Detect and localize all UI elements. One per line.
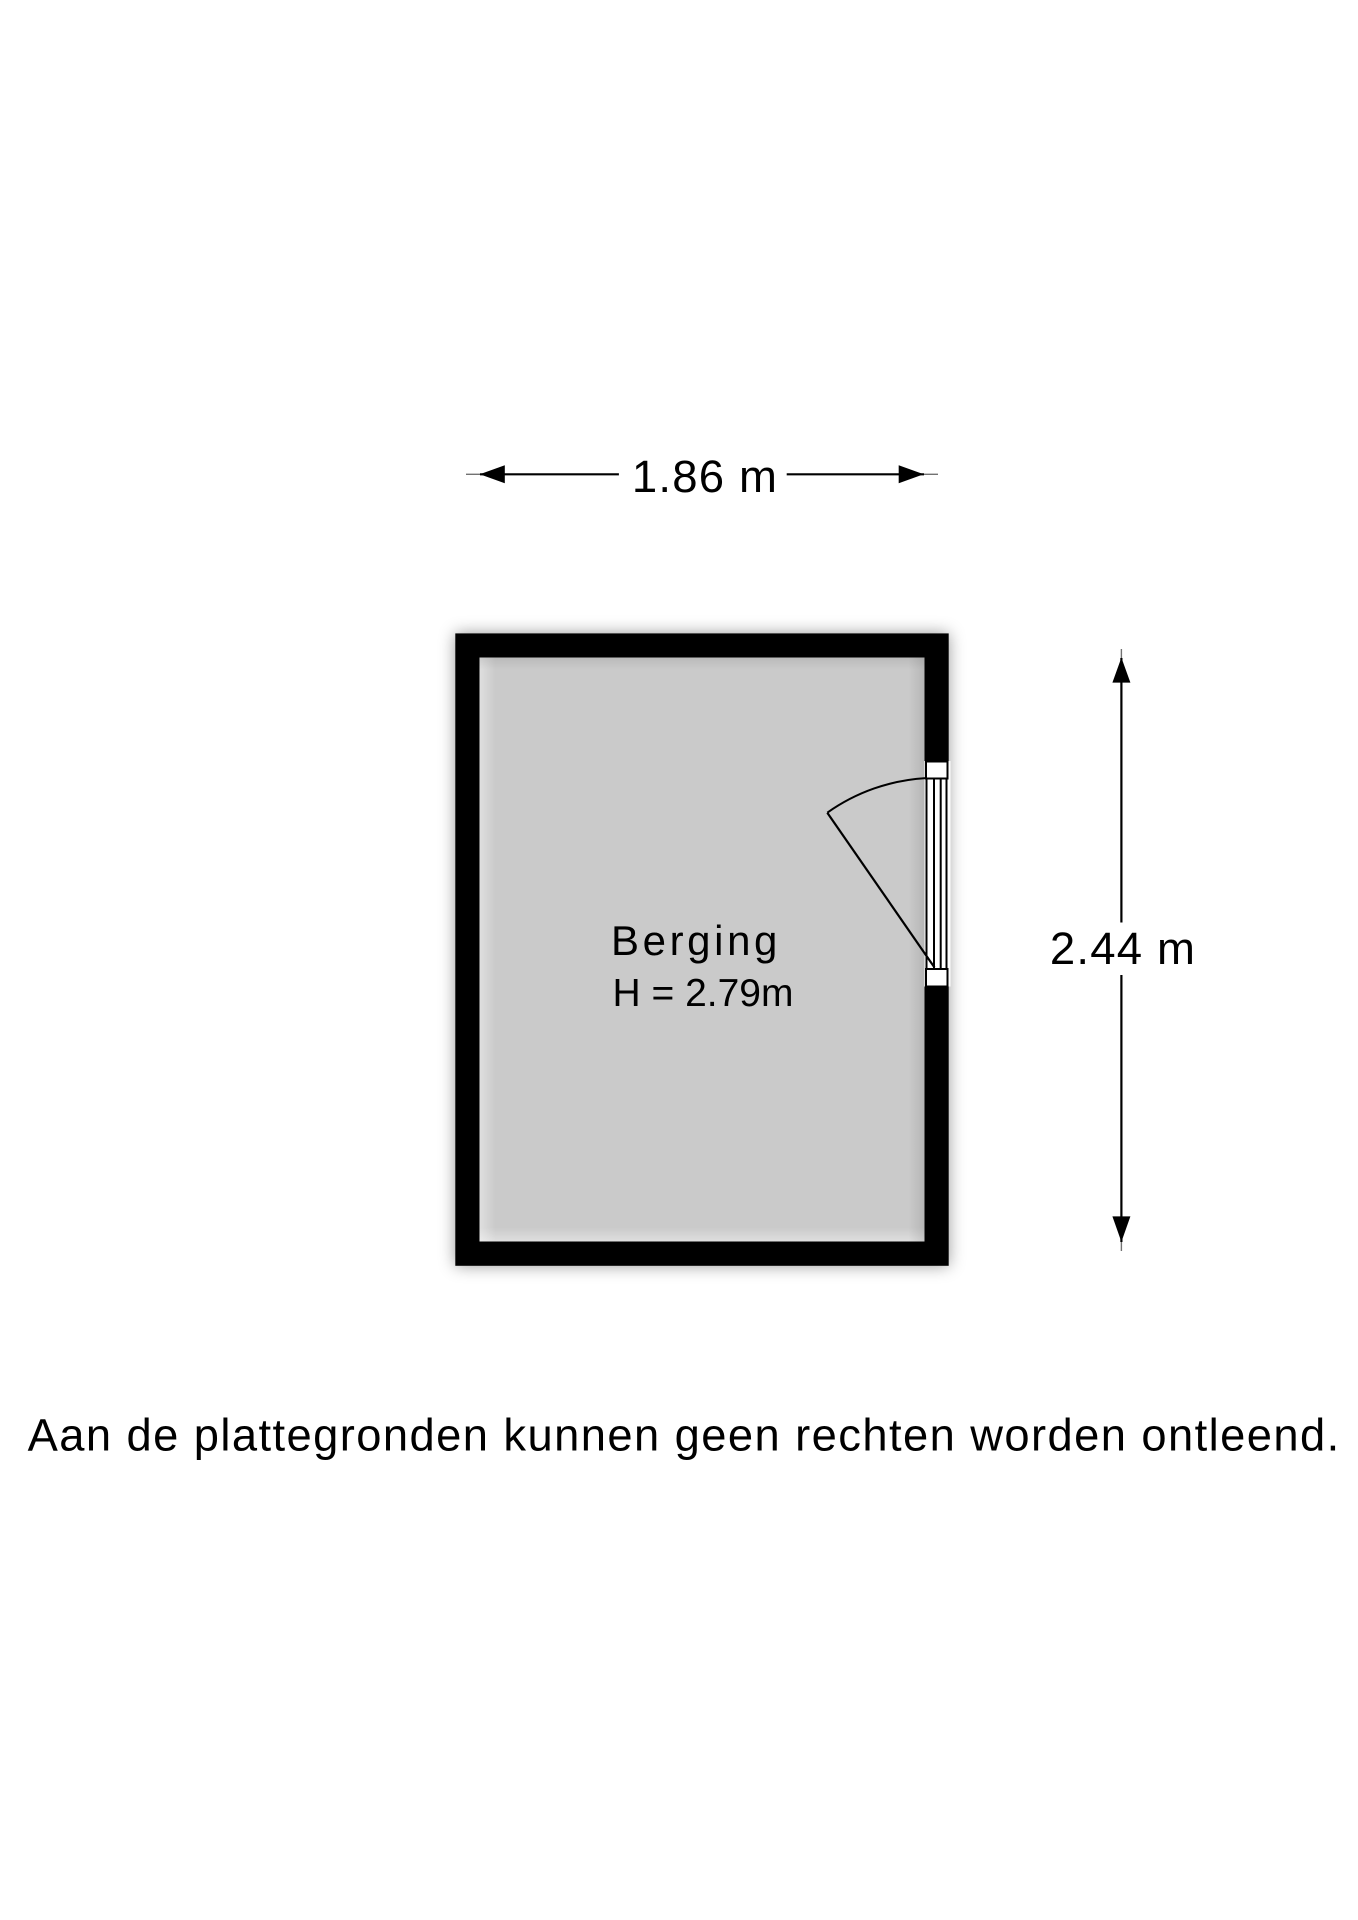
svg-text:2.44 m: 2.44 m <box>1050 923 1196 974</box>
svg-text:Berging: Berging <box>611 917 781 964</box>
svg-text:Aan de plattegronden kunnen ge: Aan de plattegronden kunnen geen rechten… <box>28 1410 1341 1461</box>
svg-text:1.86 m: 1.86 m <box>632 451 778 502</box>
svg-text:H = 2.79m: H = 2.79m <box>612 972 793 1015</box>
